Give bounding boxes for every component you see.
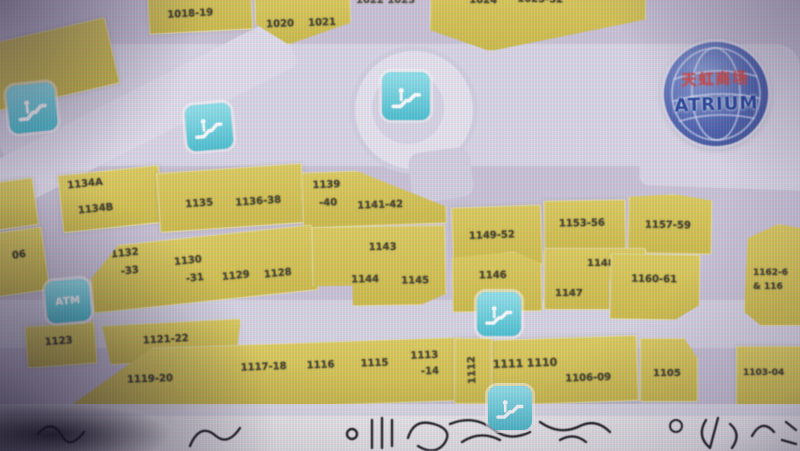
unit-label: 1149-52 — [469, 230, 515, 242]
unit-label: 1153-56 — [559, 219, 605, 230]
unit-label: 1117-18 — [241, 362, 287, 374]
escalator-glyph — [483, 298, 515, 330]
unit-label: 1162-6 — [753, 269, 788, 278]
unit-label: 1157-59 — [645, 221, 691, 232]
unit-label: 1112 — [467, 356, 478, 384]
unit-label: 1132 — [111, 248, 140, 261]
escalator-icon — [6, 82, 59, 135]
unit-block-1143-45: 1143 1144 1145 — [311, 225, 446, 307]
unit-label: 1123 — [44, 336, 72, 348]
unit-label: 1147 — [555, 289, 583, 299]
unit-block-1153-56: 1153-56 — [544, 199, 627, 252]
unit-label: 1139 — [312, 180, 340, 191]
unit-block-1018-19: 1018-19 — [147, 0, 253, 35]
unit-block-1134: 1134A 1134B — [57, 165, 165, 233]
unit-label: 1145 — [401, 276, 429, 286]
unit-label: 1020 — [266, 19, 294, 30]
unit-block-1112: 1112 — [454, 338, 492, 404]
escalator-glyph — [191, 109, 227, 145]
unit-label: 1024 — [469, 0, 497, 6]
escalator-glyph — [13, 89, 51, 127]
unit-label-fragment: 1022 1023 — [356, 0, 415, 6]
unit-block-1105: 1105 — [640, 338, 698, 402]
unit-label: 1111 — [493, 358, 524, 370]
mall-logo: 天虹商场 ATRIUM — [662, 40, 770, 148]
unit-label: 06 — [12, 250, 27, 262]
unit-label: & 116 — [753, 283, 783, 292]
unit-block-left-edge-b: 06 — [0, 226, 50, 297]
logo-cn-text: 天虹商场 — [663, 66, 768, 91]
unit-label: 1160-61 — [631, 275, 677, 286]
unit-label: 1135 — [185, 198, 213, 210]
unit-label: 1115 — [360, 358, 388, 369]
unit-label: -33 — [120, 266, 139, 278]
unit-label: 1121-22 — [143, 334, 189, 346]
atm-icon: ATM — [44, 278, 91, 324]
escalator-icon — [477, 292, 521, 336]
unit-label: 1103-04 — [743, 369, 784, 378]
unit-label: 1106-09 — [565, 373, 611, 385]
unit-label: 1119-20 — [127, 374, 173, 386]
unit-label: 1134A — [67, 178, 103, 192]
unit-block-1135: 1135 1136-38 — [156, 163, 306, 233]
unit-label: -31 — [186, 273, 205, 285]
unit-block-1123: 1123 — [25, 322, 98, 369]
unit-block-1103-04: 1103-04 — [736, 346, 800, 406]
unit-label: 1129 — [222, 270, 251, 283]
unit-label: 1146 — [479, 271, 507, 281]
unit-label: -14 — [421, 367, 439, 378]
unit-label: 1143 — [369, 243, 397, 253]
unit-block-1157-59: 1157-59 — [627, 193, 712, 254]
unit-block-right-edge: 1162-6 & 116 — [744, 224, 800, 326]
unit-label: 1128 — [264, 268, 293, 281]
unit-label: 1141-42 — [357, 200, 403, 212]
unit-label: 1021 — [308, 18, 336, 29]
logo-en-text: ATRIUM — [664, 92, 769, 117]
unit-label: 1018-19 — [167, 8, 213, 20]
unit-label: 1144 — [351, 275, 379, 285]
unit-label: 1105 — [653, 369, 681, 379]
escalator-glyph — [389, 79, 424, 114]
shadow-blob — [0, 404, 170, 451]
unit-label: 1130 — [174, 255, 203, 268]
mall-directory-photo: 1018-19 1020 1021 1022 1023 1024 1025-52… — [0, 0, 800, 451]
escalator-icon — [382, 72, 430, 120]
unit-label: 1113 — [410, 351, 438, 362]
escalator-icon — [488, 386, 532, 430]
escalator-glyph — [494, 392, 526, 424]
unit-label: 1116 — [307, 360, 335, 371]
unit-label: 1134B — [78, 203, 114, 217]
unit-label: 1110 — [527, 357, 558, 369]
atm-label: ATM — [55, 294, 81, 307]
unit-label: -40 — [319, 198, 337, 209]
escalator-icon — [184, 102, 234, 152]
unit-label: 1136-38 — [235, 196, 281, 209]
unit-block-left-edge-a — [0, 177, 39, 231]
unit-label: 1025-52 — [517, 0, 563, 5]
unit-block-1160-61: 1160-61 — [609, 253, 700, 321]
mall-map: 1018-19 1020 1021 1022 1023 1024 1025-52… — [0, 0, 800, 451]
